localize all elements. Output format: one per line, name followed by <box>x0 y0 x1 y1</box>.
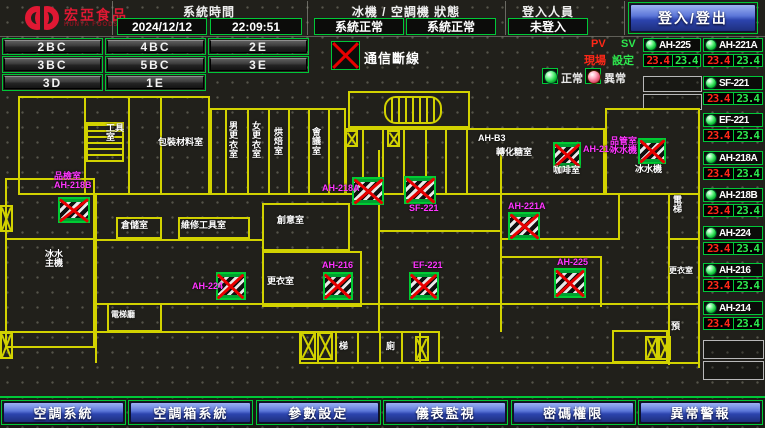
elevator-icon <box>384 96 442 124</box>
header-bottom-line <box>0 36 765 37</box>
device-button-EF-221[interactable]: EF-221 <box>703 113 763 127</box>
device-led <box>705 114 717 126</box>
map-label: 轉化糖室 <box>496 148 532 157</box>
wall <box>466 128 468 195</box>
sv-name-label: 設定 <box>612 52 634 68</box>
shaft-x-icon <box>0 332 13 359</box>
shaft-x-icon <box>658 336 671 360</box>
wall <box>308 108 310 195</box>
wall <box>268 108 270 195</box>
device-values-AH-221A: 23.423.4 <box>703 54 763 67</box>
floor-plan: 工具室包裝材料室男更衣室女更衣室烘焙室會議室AH-B3轉化糖室咖啡室冰水機倉儲室… <box>0 90 703 398</box>
map-label: 冰水主機 <box>45 250 63 269</box>
normal-led-box <box>542 68 558 84</box>
zone-button-4BC[interactable]: 4BC <box>107 40 204 53</box>
ahu-status-value: 系統正常 <box>406 18 496 35</box>
map-label: AH-224 <box>192 282 223 291</box>
sv-label: SV <box>621 38 636 50</box>
device-led <box>705 189 717 201</box>
nav-button-儀表監視[interactable]: 儀表監視 <box>385 402 506 423</box>
comm-fail-icon[interactable] <box>404 176 436 204</box>
device-name-label: AH-221A <box>719 40 757 51</box>
shaft-x-icon <box>317 332 333 360</box>
device-name-label: AH-218A <box>719 153 757 164</box>
device-sv-value: 23.4 <box>734 130 763 141</box>
zone-button-wrap: 3BC <box>2 56 103 73</box>
device-pv-value: 23.4 <box>704 93 734 104</box>
device-sv-value: 23.4 <box>734 318 763 329</box>
device-led <box>705 227 717 239</box>
map-label: 廁 <box>386 342 395 351</box>
nav-button-wrap: 密碼權限 <box>511 400 636 425</box>
map-label: 包裝材料室 <box>158 138 203 147</box>
nav-button-wrap: 參數設定 <box>256 400 381 425</box>
normal-led <box>544 70 558 84</box>
device-button-AH-216[interactable]: AH-216 <box>703 263 763 277</box>
map-label: 電梯廳 <box>111 311 135 319</box>
map-label: AH-216 <box>322 261 353 270</box>
device-values-AH-218B: 23.423.4 <box>703 204 763 217</box>
map-label: AH-221A <box>508 202 546 211</box>
wall <box>299 362 700 364</box>
abnormal-led-box <box>585 68 601 84</box>
map-label: SF-221 <box>409 204 439 213</box>
device-pv-value: 23.4 <box>704 130 734 141</box>
bottom-nav: 空調系統空調箱系統參數設定儀表監視密碼權限異常警報 <box>0 396 765 428</box>
device-sv-value: 23.4 <box>734 205 763 216</box>
shaft-x-icon <box>0 205 13 232</box>
map-label: 倉儲室 <box>121 221 148 230</box>
pv-name-label: 現場 <box>584 52 606 68</box>
map-label: 工具室 <box>106 124 124 143</box>
chiller-status-value: 系統正常 <box>314 18 404 35</box>
comm-fail-icon[interactable] <box>323 272 353 300</box>
device-pv-value: 23.4 <box>704 205 734 216</box>
wall <box>668 238 700 240</box>
nav-button-wrap: 異常警報 <box>638 400 763 425</box>
device-pv-value: 23.4 <box>704 280 734 291</box>
hmi-screen: 宏亞食品 HUNYA FOODS 系統時間 2024/12/12 22:09:5… <box>0 0 765 426</box>
login-button-wrap: 登入/登出 <box>628 2 758 34</box>
device-name-label: AH-216 <box>719 265 750 276</box>
comm-fail-legend-icon <box>333 43 358 68</box>
zone-button-wrap: 1E <box>105 74 206 91</box>
nav-button-wrap: 儀表監視 <box>383 400 508 425</box>
system-date-value: 2024/12/12 <box>117 18 207 35</box>
wall <box>335 331 337 364</box>
wall <box>378 230 500 232</box>
device-name-label: AH-224 <box>719 228 750 239</box>
nav-button-wrap: 空調系統 <box>1 400 126 425</box>
map-label: AH-B3 <box>478 134 506 143</box>
device-sv-value: 23.4 <box>734 280 763 291</box>
device-values-EF-221: 23.423.4 <box>703 129 763 142</box>
nav-button-參數設定[interactable]: 參數設定 <box>258 402 379 423</box>
system-clock-value: 22:09:51 <box>210 18 302 35</box>
nav-button-空調系統[interactable]: 空調系統 <box>3 402 124 423</box>
device-values-AH-225: 23.423.4 <box>643 54 701 67</box>
normal-label: 正常 <box>561 70 583 86</box>
header-divider <box>624 1 625 35</box>
wall <box>95 303 668 305</box>
device-values-AH-218A: 23.423.4 <box>703 167 763 180</box>
map-label: 男更衣室 <box>229 122 238 160</box>
header-divider <box>307 1 308 35</box>
map-label: 品管室冰水機 <box>610 137 637 156</box>
zone-button-3BC[interactable]: 3BC <box>4 58 101 71</box>
wall <box>225 108 227 195</box>
device-values-SF-221: 23.423.4 <box>703 92 763 105</box>
device-name-label: AH-225 <box>659 40 690 51</box>
map-label: 更衣室 <box>267 277 294 286</box>
map-label: 咖啡室 <box>553 166 580 175</box>
wall <box>600 256 602 307</box>
nav-button-密碼權限[interactable]: 密碼權限 <box>513 402 634 423</box>
device-pv-value: 23.4 <box>704 168 734 179</box>
brand-logo-icon <box>24 2 60 34</box>
map-label: 烘焙室 <box>274 128 283 156</box>
map-label: EF-221 <box>413 261 443 270</box>
wall <box>445 128 447 195</box>
comm-fail-icon[interactable] <box>409 272 439 300</box>
wall <box>5 238 95 240</box>
map-label: 更衣室 <box>669 267 693 275</box>
zone-button-2E[interactable]: 2E <box>210 40 307 53</box>
wall <box>247 108 249 195</box>
wall <box>357 331 359 364</box>
wall <box>401 331 403 364</box>
device-button-AH-225[interactable]: AH-225 <box>643 38 701 52</box>
device-sv-value: 23.4 <box>673 55 701 66</box>
login-user-value: 未登入 <box>508 18 588 35</box>
device-button-SF-221[interactable]: SF-221 <box>703 76 763 90</box>
zone-button-2BC[interactable]: 2BC <box>4 40 101 53</box>
device-led <box>705 39 717 51</box>
map-label: 女更衣室 <box>252 122 261 160</box>
device-button-AH-214[interactable]: AH-214 <box>703 301 763 315</box>
device-values-AH-216: 23.423.4 <box>703 279 763 292</box>
map-label: AH-225 <box>557 258 588 267</box>
wall <box>288 108 290 195</box>
map-label: 會議室 <box>312 128 321 156</box>
map-label: 品檢室AH-218B <box>54 172 92 191</box>
device-name-label: EF-221 <box>719 115 749 126</box>
map-label: 電梯 <box>673 196 682 215</box>
device-pv-value: 23.4 <box>704 243 734 254</box>
shaft-x-icon <box>415 336 429 361</box>
map-label: 維修工具室 <box>181 221 226 230</box>
device-led <box>705 77 717 89</box>
nav-button-空調箱系統[interactable]: 空調箱系統 <box>130 402 251 423</box>
device-led <box>645 39 657 51</box>
zone-button-3E[interactable]: 3E <box>210 58 307 71</box>
comm-fail-legend-box <box>331 41 360 70</box>
device-led <box>705 152 717 164</box>
empty-device-slot <box>703 361 764 380</box>
wall <box>0 331 96 333</box>
abnormal-led <box>587 70 601 84</box>
map-label: 預 <box>671 322 680 331</box>
pv-label: PV <box>591 38 606 50</box>
device-led <box>705 264 717 276</box>
device-button-AH-224[interactable]: AH-224 <box>703 226 763 240</box>
device-values-AH-224: 23.423.4 <box>703 242 763 255</box>
device-name-label: AH-214 <box>719 303 750 314</box>
device-name-label: SF-221 <box>719 78 749 89</box>
login-logout-button[interactable]: 登入/登出 <box>630 4 756 32</box>
map-label: 創意室 <box>277 216 304 225</box>
device-sv-value: 23.4 <box>734 243 763 254</box>
comm-fail-legend-label: 通信斷線 <box>364 48 420 67</box>
zone-button-3D[interactable]: 3D <box>4 76 101 89</box>
comm-fail-icon[interactable] <box>554 268 586 298</box>
wall <box>668 303 700 305</box>
device-pv-value: 23.4 <box>644 55 673 66</box>
zone-button-1E[interactable]: 1E <box>107 76 204 89</box>
device-sv-value: 23.4 <box>734 168 763 179</box>
wall <box>95 239 262 241</box>
device-sv-value: 23.4 <box>734 55 763 66</box>
device-led <box>705 302 717 314</box>
wall <box>698 108 700 368</box>
wall <box>328 108 330 195</box>
comm-fail-icon[interactable] <box>508 212 540 240</box>
device-button-AH-218B[interactable]: AH-218B <box>703 188 763 202</box>
wall <box>262 203 350 251</box>
zone-button-5BC[interactable]: 5BC <box>107 58 204 71</box>
device-name-label: AH-218B <box>719 190 757 201</box>
wall <box>95 331 301 333</box>
wall <box>95 193 97 363</box>
device-button-AH-218A[interactable]: AH-218A <box>703 151 763 165</box>
map-label: 梯 <box>339 342 348 351</box>
map-label: 冰水機 <box>635 165 662 174</box>
empty-device-slot <box>703 340 764 359</box>
device-pv-value: 23.4 <box>704 55 734 66</box>
abnormal-label: 異常 <box>604 70 626 86</box>
shaft-x-icon <box>300 332 316 360</box>
shaft-x-icon <box>387 130 400 147</box>
zone-button-wrap: 2BC <box>2 38 103 55</box>
shaft-x-icon <box>645 336 658 360</box>
device-values-AH-214: 23.423.4 <box>703 317 763 330</box>
comm-fail-icon[interactable] <box>58 197 90 223</box>
nav-button-wrap: 空調箱系統 <box>128 400 253 425</box>
shaft-x-icon <box>345 130 358 147</box>
comm-fail-icon[interactable] <box>638 138 666 164</box>
nav-button-異常警報[interactable]: 異常警報 <box>640 402 761 423</box>
device-button-AH-221A[interactable]: AH-221A <box>703 38 763 52</box>
wall <box>379 331 381 364</box>
zone-button-wrap: 4BC <box>105 38 206 55</box>
zone-button-wrap: 2E <box>208 38 309 55</box>
map-label: AH-218A <box>322 184 360 193</box>
device-sv-value: 23.4 <box>734 93 763 104</box>
zone-button-wrap: 3E <box>208 56 309 73</box>
zone-button-wrap: 5BC <box>105 56 206 73</box>
device-pv-value: 23.4 <box>704 318 734 329</box>
zone-button-wrap: 3D <box>2 74 103 91</box>
